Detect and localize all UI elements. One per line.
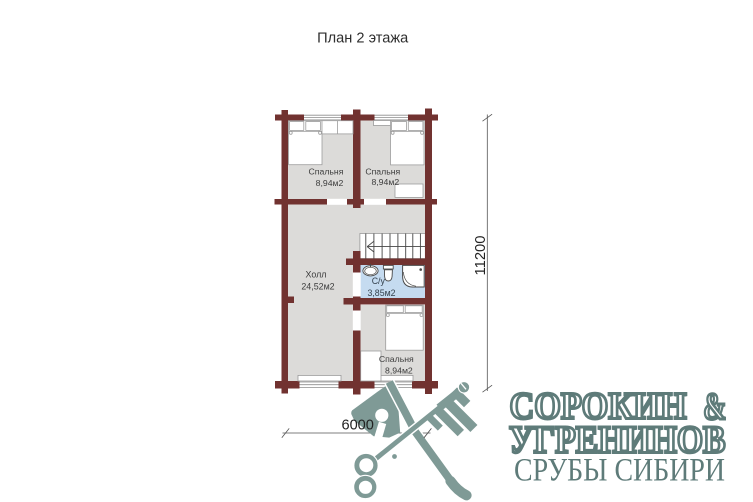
svg-text:8,94м2: 8,94м2 <box>371 177 399 187</box>
svg-text:Холл: Холл <box>306 270 327 280</box>
svg-text:С/у: С/у <box>372 276 386 286</box>
svg-text:11200: 11200 <box>473 235 489 275</box>
svg-text:Спальня: Спальня <box>365 166 400 176</box>
svg-text:План 2 этажа: План 2 этажа <box>317 31 409 47</box>
svg-text:8,94м2: 8,94м2 <box>316 178 344 188</box>
svg-text:8,94м2: 8,94м2 <box>385 366 413 376</box>
svg-text:СРУБЫ СИБИРИ: СРУБЫ СИБИРИ <box>514 453 725 489</box>
svg-text:Спальня: Спальня <box>379 354 414 364</box>
svg-text:3,85м2: 3,85м2 <box>367 288 395 298</box>
svg-text:6000: 6000 <box>341 418 373 434</box>
svg-text:24,52м2: 24,52м2 <box>301 281 334 291</box>
svg-text:Спальня: Спальня <box>309 167 344 177</box>
